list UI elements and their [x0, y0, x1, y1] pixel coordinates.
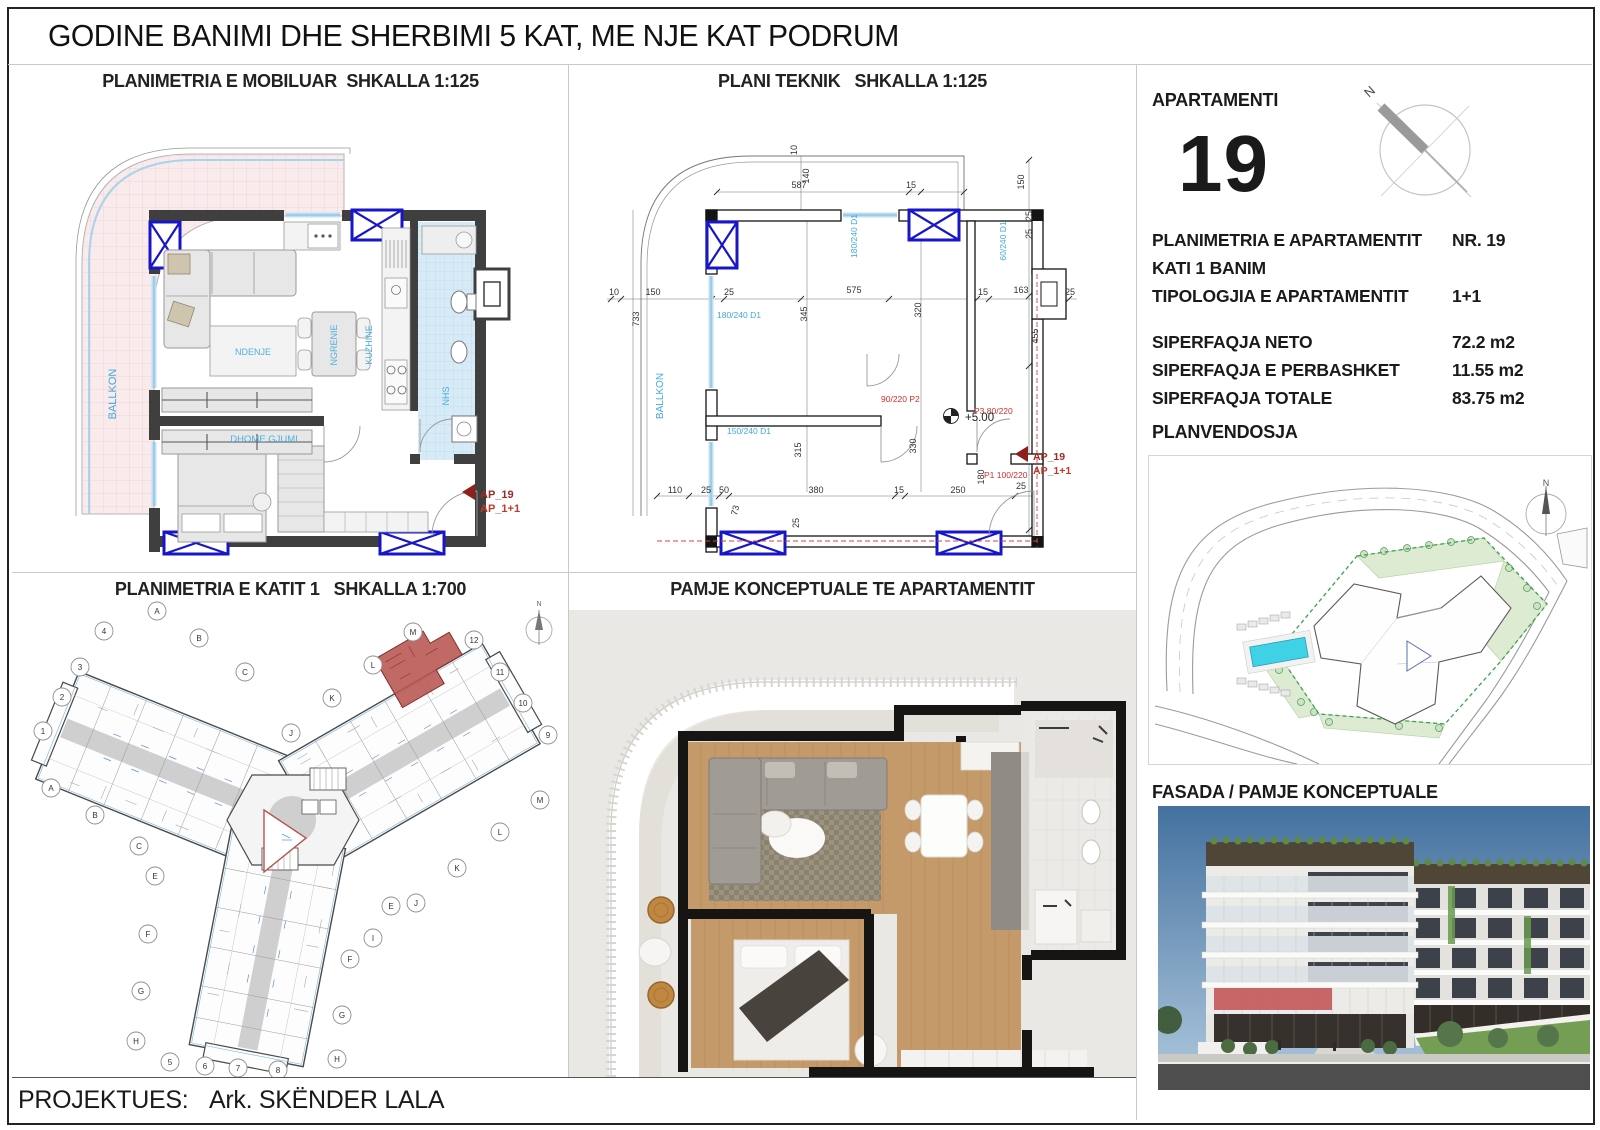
dim: 320 [913, 302, 923, 317]
concept-render-section: PAMJE KONCEPTUALE TE APARTAMENTIT [569, 572, 1136, 1077]
info-value: NR. 19 [1452, 230, 1505, 251]
footer: PROJEKTUES: Ark. SKËNDER LALA [12, 1077, 1136, 1119]
apartment-marker-id: AP_19 [1033, 451, 1065, 463]
dim: 250 [950, 485, 965, 495]
plan-label: 7 [236, 1064, 241, 1073]
area-value: 83.75 m2 [1452, 388, 1524, 409]
dim: 150 [1016, 174, 1026, 189]
dim: 15 [906, 180, 916, 190]
north-compass-icon [526, 610, 552, 645]
concept-render-image [569, 610, 1136, 1077]
doors [867, 354, 1034, 536]
drawing-sheet: GODINE BANIMI DHE SHERBIMI 5 KAT, ME NJE… [0, 0, 1600, 1130]
technical-plan-section: PLANI TEKNIK SHKALLA 1:125 [569, 64, 1136, 572]
apartment-marker-id: AP_19 [480, 489, 514, 501]
facade-render [1158, 806, 1590, 1090]
dim: 380 [808, 485, 823, 495]
plan-label: G [339, 1011, 345, 1020]
info-row: TIPOLOGJIA E APARTAMENTIT 1+1 [1152, 286, 1582, 310]
room-label-ballkon: BALLKON [107, 369, 119, 420]
footer-label: PROJEKTUES: [18, 1086, 188, 1114]
plan-label: 11 [496, 668, 505, 677]
plan-label: E [388, 902, 393, 911]
plan-label: 8 [276, 1066, 281, 1075]
plan-label: L [498, 828, 503, 837]
plan-label: 2 [60, 693, 65, 702]
technical-plan-title: PLANI TEKNIK SHKALLA 1:125 [569, 71, 1136, 92]
floor1-plan-title: PLANIMETRIA E KATIT 1 SHKALLA 1:700 [12, 579, 569, 600]
dim: 110 [668, 485, 682, 495]
apartment-marker-type: AP_1+1 [1033, 465, 1071, 477]
sheet-title: GODINE BANIMI DHE SHERBIMI 5 KAT, ME NJE… [48, 18, 899, 54]
north-compass-icon: N [1351, 74, 1501, 224]
dim: 25 [1065, 287, 1075, 297]
plan-label: F [348, 955, 353, 964]
sidebar: APARTAMENTI 19 N PLANIMETRIA E APARTAMEN… [1136, 64, 1593, 1120]
dim: 25 [1016, 481, 1026, 491]
furnished-plan-drawing: BALLKONNDENJENGRENIEKUZHINEDHOME GJUMINH… [12, 64, 569, 572]
north-label: N [1361, 83, 1378, 100]
plan-label: J [289, 729, 293, 738]
dim: 15 [978, 287, 988, 297]
door-label: 90/220 P2 [881, 394, 920, 404]
site-labels: N [1543, 478, 1550, 488]
door-label: P1 100/220 [984, 470, 1028, 480]
plan-label: 4 [102, 627, 107, 636]
building-right-block [1408, 859, 1590, 1034]
dim: 575 [846, 285, 861, 295]
furnished-plan-title: PLANIMETRIA E MOBILUAR SHKALLA 1:125 [12, 71, 569, 92]
dim: 25 [701, 485, 711, 495]
room-label-ngrenie: NGRENIE [329, 324, 339, 365]
level-label: +5.00 [965, 412, 994, 424]
apartment-marker-icon [462, 484, 475, 500]
dim: 25 [724, 287, 734, 297]
dim: 163 [1013, 285, 1028, 295]
info-label: PLANIMETRIA E APARTAMENTIT [1152, 230, 1422, 250]
area-row: SIPERFAQJA TOTALE 83.75 m2 [1152, 388, 1582, 412]
window-label: 180/240 D1 [717, 310, 761, 320]
plan-label: A [48, 784, 54, 793]
plan-label: F [146, 930, 151, 939]
info-label: TIPOLOGJIA E APARTAMENTIT [1152, 286, 1409, 306]
central-core [227, 768, 359, 872]
dim: 330 [908, 438, 918, 453]
dim: 25 [1024, 229, 1034, 239]
dim: 50 [719, 485, 729, 495]
plan-label: J [414, 899, 418, 908]
plan-label: M [410, 628, 417, 637]
plan-label: K [329, 694, 335, 703]
render-bathroom [1031, 715, 1117, 950]
apartment-label: APARTAMENTI [1152, 90, 1278, 111]
plan-label: 9 [546, 731, 551, 740]
area-label: SIPERFAQJA TOTALE [1152, 388, 1332, 408]
plan-label: K [454, 864, 460, 873]
area-row: SIPERFAQJA E PERBASHKET 11.55 m2 [1152, 360, 1582, 384]
window-label: 60/240 D1 [998, 221, 1008, 260]
plan-label: 1 [41, 727, 46, 736]
area-row: SIPERFAQJA NETO 72.2 m2 [1152, 332, 1582, 356]
dim: 345 [799, 306, 809, 321]
north-label: N [536, 601, 541, 608]
plan-label: C [242, 668, 248, 677]
area-label: SIPERFAQJA E PERBASHKET [1152, 360, 1400, 380]
floor1-plan-section: PLANIMETRIA E KATIT 1 SHKALLA 1:700 [12, 572, 569, 1077]
building-left-block [1202, 837, 1418, 1049]
plan-label: L [371, 661, 376, 670]
dim: 25 [791, 518, 801, 528]
info-row: KATI 1 BANIM [1152, 258, 1582, 282]
window-label: 150/240 D1 [727, 426, 771, 436]
plan-label: B [196, 634, 201, 643]
floor1-labels: N [536, 601, 541, 608]
plan-label: B [92, 811, 97, 820]
level-symbol [944, 409, 959, 424]
info-row: PLANIMETRIA E APARTAMENTIT NR. 19 [1152, 230, 1582, 254]
dim: 733 [631, 311, 641, 326]
room-label-dhome-gjumi: DHOME GJUMI [230, 434, 298, 445]
compass-labels: N [1361, 83, 1378, 100]
plan-label: H [334, 1055, 340, 1064]
site-plan-label: PLANVENDOSJA [1152, 422, 1298, 443]
area-value: 72.2 m2 [1452, 332, 1515, 353]
dim: 73 [729, 504, 741, 516]
furnished-plan-section: PLANIMETRIA E MOBILUAR SHKALLA 1:125 [12, 64, 569, 572]
walls [706, 210, 1066, 552]
plan-label: I [372, 934, 374, 943]
apartment-number: 19 [1178, 124, 1269, 204]
technical-plan-drawing: 5871401015150101507332534557532015163252… [569, 64, 1136, 572]
highlighted-apartment-balcony [1214, 988, 1332, 1010]
plan-label: G [138, 987, 144, 996]
area-label: SIPERFAQJA NETO [1152, 332, 1312, 352]
room-label-kuzhine: KUZHINE [364, 325, 374, 365]
concept-render-title: PAMJE KONCEPTUALE TE APARTAMENTIT [569, 579, 1136, 600]
dim: 25 [1024, 211, 1034, 221]
info-value: 1+1 [1452, 286, 1481, 307]
north-label: N [1543, 478, 1550, 488]
living-furniture [164, 250, 370, 376]
facade-label: FASADA / PAMJE KONCEPTUALE [1152, 782, 1438, 803]
bedroom-furniture [162, 388, 428, 542]
room-label-ballkon: BALLKON [655, 373, 666, 419]
plan-label: 12 [470, 636, 479, 645]
plan-label: A [154, 607, 160, 616]
room-label-nhs: NHS [441, 386, 451, 405]
footer-value: Ark. SKËNDER LALA [209, 1086, 444, 1114]
technical-labels: 5871401015150101507332534557532015163252… [609, 145, 1075, 528]
info-label: KATI 1 BANIM [1152, 258, 1266, 278]
window-label: 180/240 D1 [849, 214, 859, 258]
dim: 455 [1030, 328, 1040, 343]
plan-label: 6 [203, 1062, 208, 1071]
area-value: 11.55 m2 [1452, 360, 1523, 381]
plan-label: 5 [168, 1058, 173, 1067]
apartment-marker-type: AP_1+1 [480, 503, 520, 515]
dim: 15 [894, 485, 904, 495]
dim: 315 [793, 442, 803, 457]
glazing [711, 215, 897, 506]
dim: 10 [789, 145, 799, 155]
plan-label: H [133, 1037, 139, 1046]
room-label-ndenje: NDENJE [235, 347, 271, 357]
plan-label: 10 [519, 699, 528, 708]
dim: 150 [645, 287, 660, 297]
dim: 140 [801, 168, 811, 183]
window-symbols [707, 210, 1001, 554]
plan-label: 3 [78, 663, 83, 672]
plan-label: M [537, 796, 544, 805]
floor1-plan-drawing: 4A3B2C1M12L11K109JABCMLKEJEIFFGGHH5678 N [12, 572, 569, 1077]
plan-label: C [136, 842, 142, 851]
plan-label: E [152, 872, 157, 881]
dim: 10 [609, 287, 619, 297]
site-plan-drawing: N [1148, 455, 1592, 765]
